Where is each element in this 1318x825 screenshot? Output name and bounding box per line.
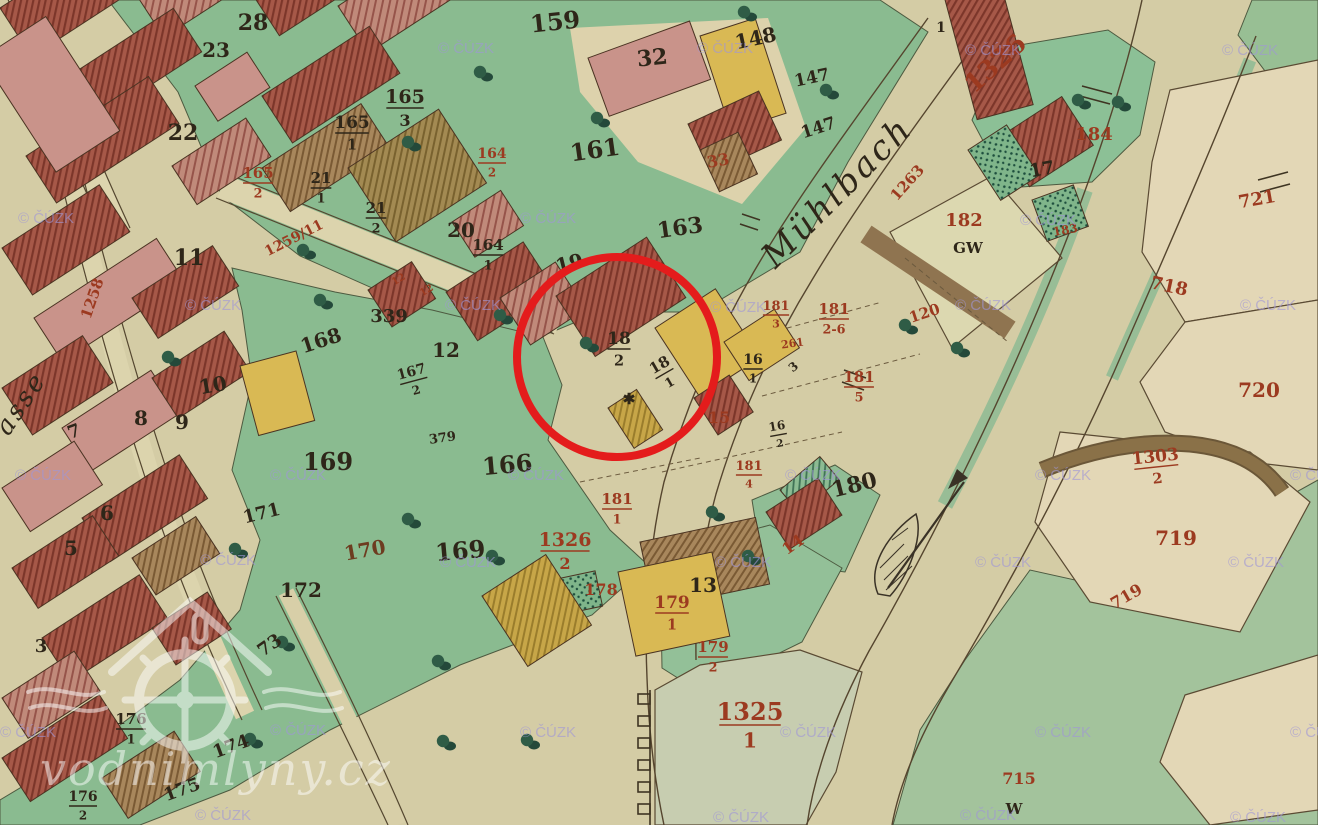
svg-text:181: 181: [818, 300, 849, 318]
parcel-label: 23: [202, 38, 230, 62]
map-viewport: 2823221593214814714716116531651165221121…: [0, 0, 1318, 825]
svg-text:181: 181: [762, 299, 789, 314]
svg-text:20: 20: [447, 218, 475, 242]
svg-text:181: 181: [735, 459, 762, 474]
svg-text:2: 2: [709, 661, 718, 676]
svg-text:28: 28: [238, 10, 269, 36]
parcel-label: 11: [174, 245, 205, 271]
parcel-label: 172: [280, 578, 322, 602]
parcel-label: 1812-6: [818, 300, 849, 338]
svg-text:1: 1: [484, 259, 493, 274]
svg-text:184: 184: [1075, 124, 1113, 145]
svg-text:1: 1: [613, 513, 622, 528]
cuzk-watermark-text: © ČÚZK: [185, 297, 241, 314]
parcel-label: GW: [953, 239, 984, 257]
cuzk-watermark-text: © ČÚZK: [710, 299, 766, 316]
cuzk-watermark-text: © ČÚZK: [1240, 297, 1296, 314]
cuzk-watermark-text: © ČÚZK: [440, 554, 496, 571]
parcel-label: 13: [689, 573, 717, 597]
svg-text:165: 165: [385, 86, 425, 108]
svg-text:13: 13: [689, 573, 717, 597]
cuzk-watermark-text: © ČÚZK: [1230, 809, 1286, 825]
cuzk-watermark-text: © ČÚZK: [960, 807, 1016, 824]
svg-text:22: 22: [168, 120, 199, 146]
svg-text:GW: GW: [953, 239, 984, 257]
svg-text:3: 3: [399, 111, 410, 130]
svg-text:2: 2: [372, 222, 381, 237]
parcel-label: 719: [1155, 526, 1197, 550]
svg-text:719: 719: [1155, 526, 1197, 550]
svg-text:18: 18: [607, 329, 631, 349]
svg-text:2: 2: [79, 809, 87, 823]
svg-text:1: 1: [936, 20, 946, 36]
cuzk-watermark-text: © ČÚZK: [1290, 724, 1318, 741]
parcel-label: 715: [1002, 769, 1035, 788]
parcel-label: 720: [1238, 378, 1280, 402]
cuzk-watermark-text: © ČÚZK: [270, 722, 326, 739]
svg-text:3: 3: [772, 318, 780, 331]
svg-text:11: 11: [174, 245, 205, 271]
svg-text:179: 179: [697, 638, 728, 656]
cuzk-watermark-text: © ČÚZK: [975, 554, 1031, 571]
svg-text:2: 2: [559, 554, 570, 573]
svg-text:1: 1: [743, 729, 757, 753]
cuzk-watermark-text: © ČÚZK: [1228, 554, 1284, 571]
parcel-label: 5: [64, 536, 78, 560]
svg-text:9: 9: [175, 410, 189, 434]
svg-text:3: 3: [35, 636, 48, 657]
cuzk-watermark-text: © ČÚZK: [1222, 42, 1278, 59]
svg-text:32: 32: [636, 44, 669, 73]
parcel-label: 32: [636, 44, 669, 73]
cuzk-watermark-text: © ČÚZK: [1020, 212, 1076, 229]
svg-text:5: 5: [64, 536, 78, 560]
svg-text:1326: 1326: [539, 529, 592, 551]
svg-text:17: 17: [1028, 157, 1056, 182]
parcel-label: ✱: [623, 390, 636, 408]
svg-text:181: 181: [843, 368, 874, 386]
svg-text:33: 33: [705, 149, 730, 172]
svg-text:165: 165: [242, 164, 273, 182]
cuzk-watermark-text: © ČÚZK: [955, 297, 1011, 314]
parcel-label: 17: [1028, 157, 1056, 182]
svg-text:164: 164: [477, 146, 506, 162]
svg-text:23: 23: [202, 38, 230, 62]
svg-text:181: 181: [601, 490, 632, 508]
cuzk-watermark-text: © ČÚZK: [780, 724, 836, 741]
cuzk-watermark-text: © ČÚZK: [445, 297, 501, 314]
parcel-label: 22: [168, 120, 199, 146]
parcel-label: 8: [134, 406, 148, 430]
cuzk-watermark-text: © ČÚZK: [1290, 467, 1318, 484]
parcel-label: 10: [197, 371, 229, 399]
svg-text:1: 1: [317, 192, 326, 207]
svg-text:4: 4: [745, 478, 753, 491]
cuzk-watermark-text: © ČÚZK: [508, 467, 564, 484]
cuzk-watermark-text: © ČÚZK: [195, 807, 251, 824]
cuzk-watermark-text: © ČÚZK: [438, 40, 494, 57]
svg-text:715: 715: [1002, 769, 1035, 788]
svg-text:2: 2: [488, 166, 496, 180]
svg-text:16: 16: [768, 418, 787, 435]
svg-text:178: 178: [584, 580, 617, 599]
parcel-label: 178: [584, 580, 617, 599]
parcel-label: 20: [447, 218, 475, 242]
cuzk-watermark-text: © ČÚZK: [1035, 467, 1091, 484]
svg-text:✱: ✱: [623, 390, 636, 408]
svg-text:12: 12: [432, 338, 460, 362]
svg-text:720: 720: [1238, 378, 1280, 402]
svg-text:165: 165: [334, 113, 370, 133]
cuzk-watermark-text: © ČÚZK: [0, 724, 56, 741]
watermark-wheel-hub: [176, 691, 194, 709]
svg-text:1325: 1325: [717, 697, 784, 726]
parcel-label: 3: [35, 636, 48, 657]
parcel-label: 28: [238, 10, 269, 36]
svg-text:182: 182: [945, 210, 983, 231]
cuzk-watermark-text: © ČÚZK: [715, 554, 771, 571]
svg-text:339: 339: [370, 306, 408, 327]
svg-text:159: 159: [529, 5, 582, 39]
cuzk-watermark-text: © ČÚZK: [1035, 724, 1091, 741]
parcel-label: 9: [175, 410, 189, 434]
svg-text:2: 2: [254, 187, 263, 202]
svg-text:8: 8: [134, 406, 148, 430]
cuzk-watermark-text: © ČÚZK: [270, 467, 326, 484]
parcel-label: 159: [529, 5, 582, 39]
cuzk-watermark-text: © ČÚZK: [520, 724, 576, 741]
parcel-label: 182: [945, 210, 983, 231]
svg-text:6: 6: [100, 501, 114, 525]
parcel-label: 184: [1075, 124, 1113, 145]
svg-text:2: 2: [614, 352, 624, 369]
svg-text:15: 15: [708, 408, 730, 427]
map-canvas: 2823221593214814714716116531651165221121…: [0, 0, 1318, 825]
svg-text:2: 2: [1152, 470, 1164, 488]
svg-text:21: 21: [311, 169, 332, 187]
parcel-label: 1: [936, 20, 946, 36]
svg-text:5: 5: [855, 391, 864, 406]
parcel-label: 12: [432, 338, 460, 362]
parcel-label: 33: [705, 149, 730, 172]
parcel-label: 15: [708, 408, 730, 427]
watermark-site-text: vodnimlyny.cz: [40, 742, 392, 796]
svg-text:164: 164: [472, 236, 503, 254]
svg-text:1: 1: [347, 136, 357, 153]
svg-text:1: 1: [749, 372, 757, 386]
cuzk-watermark-text: © ČÚZK: [785, 467, 841, 484]
cuzk-watermark-text: © ČÚZK: [965, 42, 1021, 59]
svg-text:16: 16: [743, 352, 762, 368]
cuzk-watermark-text: © ČÚZK: [18, 210, 74, 227]
svg-text:21: 21: [366, 199, 387, 217]
cuzk-watermark-text: © ČÚZK: [15, 467, 71, 484]
svg-text:172: 172: [280, 578, 322, 602]
parcel-label: 6: [100, 501, 114, 525]
svg-text:2-6: 2-6: [822, 323, 845, 338]
cuzk-watermark-text: © ČÚZK: [520, 210, 576, 227]
svg-text:179: 179: [654, 593, 690, 613]
cuzk-watermark-text: © ČÚZK: [713, 809, 769, 825]
svg-text:10: 10: [197, 371, 229, 399]
svg-text:1: 1: [667, 616, 677, 633]
parcel-label: 339: [370, 306, 408, 327]
cuzk-watermark-text: © ČÚZK: [697, 40, 753, 57]
cuzk-watermark-text: © ČÚZK: [200, 552, 256, 569]
